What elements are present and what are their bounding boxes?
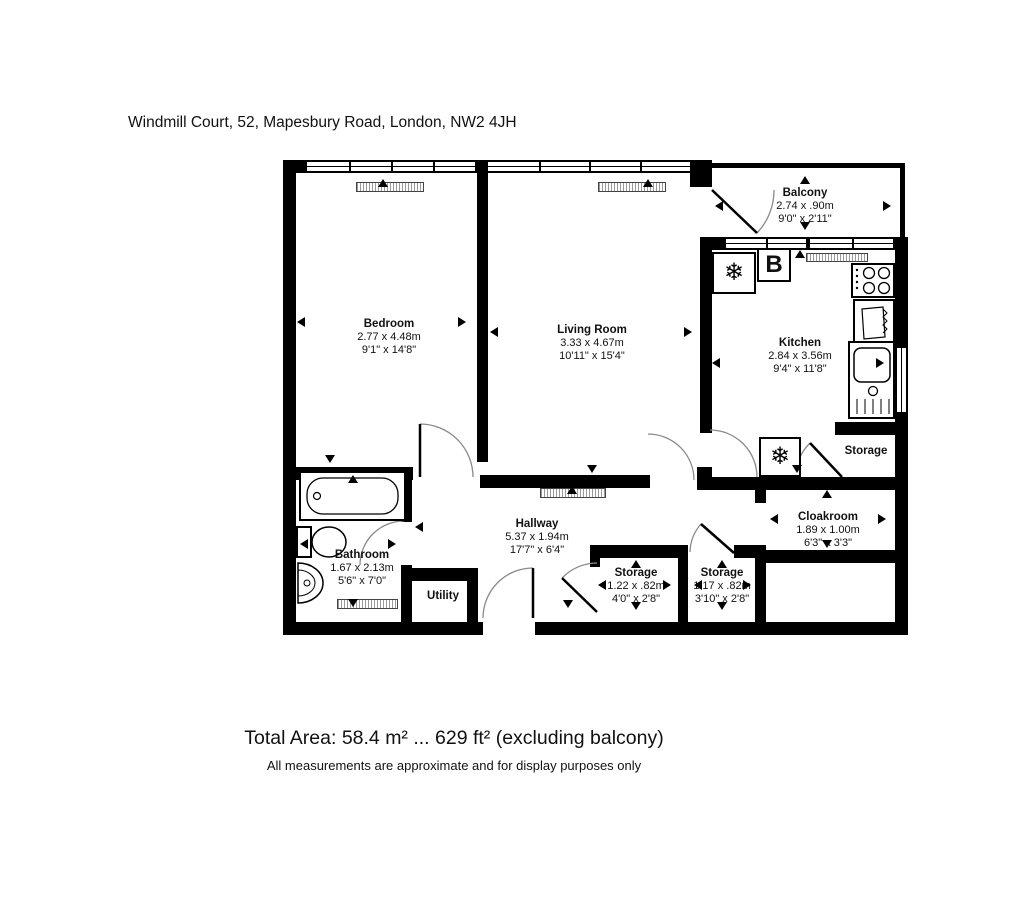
room-dims-metric: 3.33 x 4.67m <box>557 337 627 350</box>
measure-arrow-icon <box>631 560 641 568</box>
room-name: Storage <box>845 445 888 458</box>
radiator-symbol <box>806 253 868 262</box>
radiator-symbol <box>598 182 666 192</box>
sink-icon <box>849 342 894 418</box>
room-label-living-room: Living Room 3.33 x 4.67m 10'11" x 15'4" <box>557 324 627 363</box>
total-area-text: Total Area: 58.4 m² ... 629 ft² (excludi… <box>0 727 908 750</box>
room-dims-metric: 2.74 x .90m <box>776 200 833 213</box>
measure-arrow-icon <box>883 201 891 211</box>
measure-arrow-icon <box>458 317 466 327</box>
measure-arrow-icon <box>800 222 810 230</box>
measure-arrow-icon <box>415 522 423 532</box>
basin-icon <box>298 563 323 603</box>
wall-segment <box>678 545 688 622</box>
wall-segment <box>835 422 908 435</box>
room-label-balcony: Balcony 2.74 x .90m 9'0" x 2'11" <box>776 187 833 226</box>
wall-segment <box>700 237 712 433</box>
measure-arrow-icon <box>325 455 335 463</box>
room-label-hallway: Hallway 5.37 x 1.94m 17'7" x 6'4" <box>505 518 569 557</box>
room-label-bedroom: Bedroom 2.77 x 4.48m 9'1" x 14'8" <box>357 318 421 357</box>
room-name: Kitchen <box>768 337 832 350</box>
wall-segment <box>467 568 478 622</box>
wall-segment <box>401 467 412 522</box>
room-name: Hallway <box>505 518 569 531</box>
property-address: Windmill Court, 52, Mapesbury Road, Lond… <box>128 114 517 132</box>
measure-arrow-icon <box>490 327 498 337</box>
measure-arrow-icon <box>770 514 778 524</box>
wall-segment <box>477 173 488 462</box>
measure-arrow-icon <box>822 490 832 498</box>
measure-arrow-icon <box>563 600 573 608</box>
wall-segment <box>895 250 908 348</box>
measure-arrow-icon <box>822 540 832 548</box>
window-symbol <box>488 160 690 173</box>
room-label-bathroom: Bathroom 1.67 x 2.13m 5'6" x 7'0" <box>330 549 394 588</box>
oven-icon <box>854 300 894 344</box>
measure-arrow-icon <box>587 465 597 473</box>
room-label-storage-1: Storage 1.22 x .82m 4'0" x 2'8" <box>607 567 664 606</box>
balcony-wall <box>712 163 905 168</box>
wall-segment <box>755 550 908 563</box>
wall-segment <box>593 545 678 558</box>
wall-segment <box>283 160 307 173</box>
freezer-icon: ❄ <box>724 261 744 285</box>
measure-arrow-icon <box>567 486 577 494</box>
room-name: Living Room <box>557 324 627 337</box>
measure-arrow-icon <box>800 176 810 184</box>
floorplan-page: Windmill Court, 52, Mapesbury Road, Lond… <box>0 0 1024 900</box>
measure-arrow-icon <box>378 179 388 187</box>
measure-arrow-icon <box>878 514 886 524</box>
room-name: Storage <box>607 567 664 580</box>
boiler-box: B <box>757 248 791 282</box>
room-dims-metric: 5.37 x 1.94m <box>505 531 569 544</box>
measure-arrow-icon <box>717 560 727 568</box>
room-dims-metric: 1.22 x .82m <box>607 580 664 593</box>
wall-segment <box>700 477 908 490</box>
room-name: Utility <box>427 590 459 603</box>
room-name: Cloakroom <box>796 511 860 524</box>
room-name: Bathroom <box>330 549 394 562</box>
room-dims-imperial: 10'11" x 15'4" <box>557 350 627 363</box>
measure-arrow-icon <box>598 580 606 590</box>
room-name: Bedroom <box>357 318 421 331</box>
measure-arrow-icon <box>348 599 358 607</box>
wall-segment <box>712 237 726 250</box>
room-name: Balcony <box>776 187 833 200</box>
measure-arrow-icon <box>715 201 723 211</box>
window-symbol <box>810 237 893 250</box>
measure-arrow-icon <box>631 602 641 610</box>
balcony-wall <box>900 163 905 242</box>
measure-arrow-icon <box>792 465 802 473</box>
wall-segment <box>895 412 908 635</box>
room-dims-metric: 1.89 x 1.00m <box>796 524 860 537</box>
wall-segment <box>734 545 766 558</box>
measure-arrow-icon <box>684 327 692 337</box>
measure-arrow-icon <box>795 250 805 258</box>
measure-arrow-icon <box>717 602 727 610</box>
room-dims-imperial: 9'4" x 11'8" <box>768 363 832 376</box>
radiator-symbol <box>356 182 424 192</box>
measure-arrow-icon <box>712 358 720 368</box>
measure-arrow-icon <box>388 539 396 549</box>
room-label-utility: Utility <box>427 590 459 603</box>
room-dims-imperial: 17'7" x 6'4" <box>505 544 569 557</box>
room-label-kitchen: Kitchen 2.84 x 3.56m 9'4" x 11'8" <box>768 337 832 376</box>
measure-arrow-icon <box>663 580 671 590</box>
wall-segment <box>401 565 412 622</box>
wall-segment <box>283 160 296 635</box>
window-symbol <box>895 348 908 412</box>
wall-segment <box>893 237 908 250</box>
room-dims-metric: 2.77 x 4.48m <box>357 331 421 344</box>
room-dims-imperial: 5'6" x 7'0" <box>330 575 394 588</box>
wall-segment <box>755 490 766 503</box>
wall-segment <box>283 622 483 635</box>
radiator-symbol <box>337 599 398 609</box>
measure-arrow-icon <box>348 475 358 483</box>
measure-arrow-icon <box>743 580 751 590</box>
wall-segment <box>535 622 908 635</box>
boiler-label: B <box>765 253 782 277</box>
disclaimer-text: All measurements are approximate and for… <box>0 758 908 773</box>
freezer-box: ❄ <box>712 252 756 294</box>
wall-segment <box>690 160 712 187</box>
window-symbol <box>307 160 475 173</box>
wall-segment <box>475 160 488 173</box>
measure-arrow-icon <box>876 358 884 368</box>
room-dims-metric: 1.67 x 2.13m <box>330 562 394 575</box>
hob-icon <box>852 264 894 297</box>
fridge-icon: ❄ <box>770 445 790 469</box>
room-label-storage-3: Storage <box>845 445 888 458</box>
room-name: Storage <box>693 567 750 580</box>
measure-arrow-icon <box>694 580 702 590</box>
measure-arrow-icon <box>297 317 305 327</box>
measure-arrow-icon <box>643 179 653 187</box>
measure-arrow-icon <box>300 539 308 549</box>
wall-segment <box>480 475 650 488</box>
room-dims-metric: 2.84 x 3.56m <box>768 350 832 363</box>
room-dims-imperial: 9'1" x 14'8" <box>357 344 421 357</box>
